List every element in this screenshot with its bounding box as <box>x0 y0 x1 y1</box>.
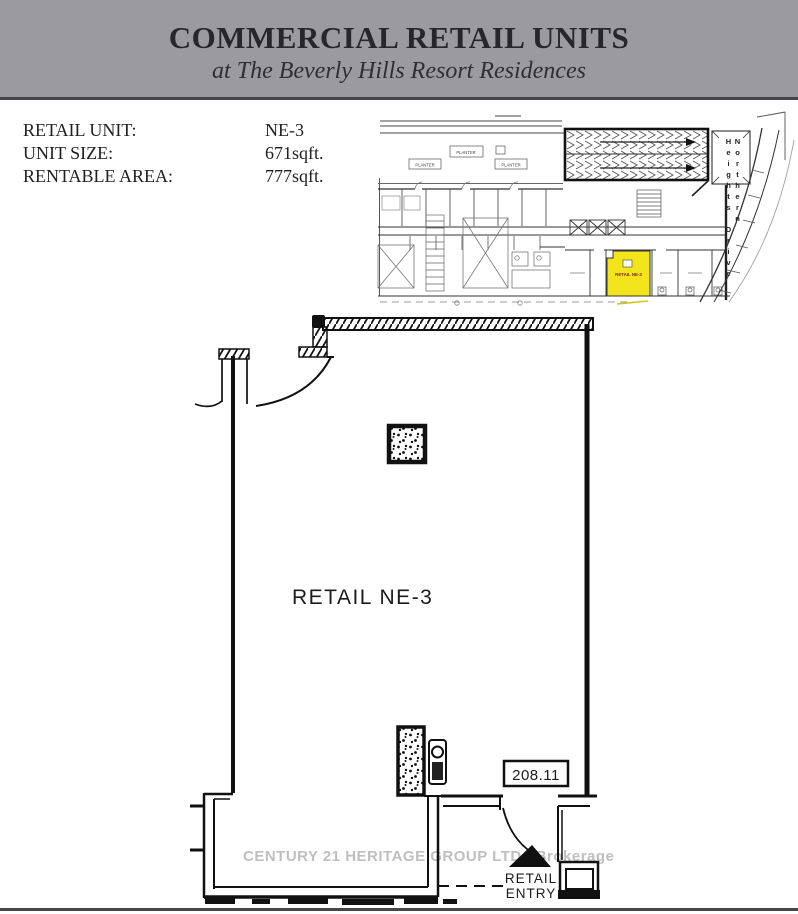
room-number: 208.11 <box>504 761 568 786</box>
room-number-label: 208.11 <box>512 767 560 784</box>
parking-ramp <box>565 129 708 196</box>
road-curves <box>700 112 794 302</box>
top-wall <box>323 318 593 330</box>
stall-column <box>426 215 444 291</box>
door-fixture <box>429 740 446 784</box>
door-swing-arc <box>256 357 331 406</box>
stippled-column <box>389 426 425 462</box>
entry-storefront <box>441 796 503 810</box>
storefront-alcove <box>190 793 441 898</box>
planter-label: PLANTER <box>415 163 434 168</box>
flyer-page: COMMERCIAL RETAIL UNITS at The Beverly H… <box>0 0 798 914</box>
plan-drawing: PLANTER PLANTER PLANTER RETAIL NE-3 CENT… <box>0 0 798 914</box>
loading-area <box>378 218 508 288</box>
floor-plan: 208.11 <box>190 315 600 905</box>
planter-label: PLANTER <box>456 150 475 155</box>
street-name-label: Northern Heights Drive <box>728 137 742 299</box>
room-label: RETAIL NE-3 <box>292 586 433 609</box>
highlighted-unit-label: RETAIL NE-3 <box>615 272 642 277</box>
column <box>312 315 325 328</box>
bottom-rule <box>0 908 798 911</box>
highlighted-unit: RETAIL NE-3 <box>607 251 650 296</box>
washrooms <box>512 252 550 288</box>
mullion-ticks <box>205 898 457 905</box>
display-box <box>558 862 600 899</box>
sidewalk-lines <box>380 116 564 133</box>
entry-label-line2: ENTRY <box>506 886 557 901</box>
elevator-bank <box>570 220 625 235</box>
stippled-pier <box>398 727 424 795</box>
left-pier <box>195 349 249 406</box>
planter-label: PLANTER <box>501 163 520 168</box>
stair <box>637 190 661 217</box>
entry-label-line1: RETAIL <box>505 871 557 886</box>
